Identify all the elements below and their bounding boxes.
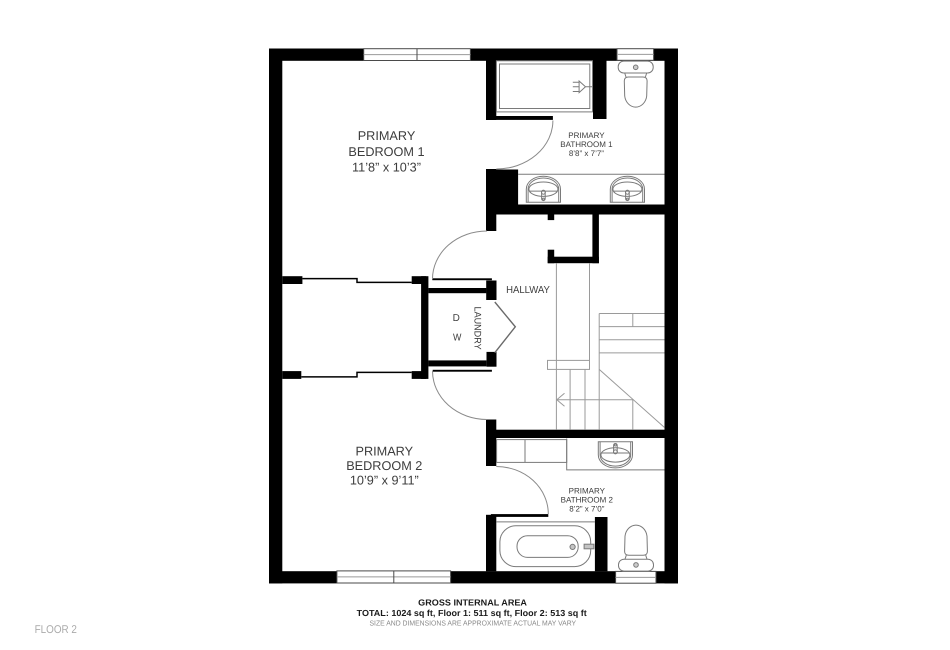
svg-text:BATHROOM 1: BATHROOM 1 bbox=[560, 140, 613, 149]
svg-text:PRIMARY: PRIMARY bbox=[568, 131, 605, 140]
svg-text:BEDROOM 2: BEDROOM 2 bbox=[346, 459, 422, 473]
svg-text:BEDROOM 1: BEDROOM 1 bbox=[348, 145, 424, 159]
svg-text:8’8” x 7’7”: 8’8” x 7’7” bbox=[569, 149, 604, 158]
svg-text:8’2” x 7’0”: 8’2” x 7’0” bbox=[569, 505, 604, 514]
svg-text:HALLWAY: HALLWAY bbox=[506, 285, 550, 296]
svg-text:GROSS INTERNAL AREA: GROSS INTERNAL AREA bbox=[418, 598, 527, 608]
svg-text:PRIMARY: PRIMARY bbox=[569, 487, 606, 496]
svg-text:PRIMARY: PRIMARY bbox=[356, 445, 414, 459]
svg-text:11’8” x 10’3”: 11’8” x 10’3” bbox=[352, 161, 421, 175]
svg-text:W: W bbox=[453, 333, 462, 344]
svg-text:SIZE AND DIMENSIONS ARE APPROX: SIZE AND DIMENSIONS ARE APPROXIMATE ACTU… bbox=[370, 619, 577, 628]
svg-text:10’9” x 9’11”: 10’9” x 9’11” bbox=[350, 474, 419, 488]
svg-text:D: D bbox=[453, 313, 460, 324]
svg-text:BATHROOM 2: BATHROOM 2 bbox=[561, 496, 614, 505]
svg-text:LAUNDRY: LAUNDRY bbox=[472, 307, 483, 351]
svg-text:TOTAL: 1024 sq ft, Floor 1: 51: TOTAL: 1024 sq ft, Floor 1: 511 sq ft, F… bbox=[357, 608, 587, 618]
svg-text:FLOOR 2: FLOOR 2 bbox=[35, 624, 77, 636]
svg-text:PRIMARY: PRIMARY bbox=[358, 129, 416, 143]
